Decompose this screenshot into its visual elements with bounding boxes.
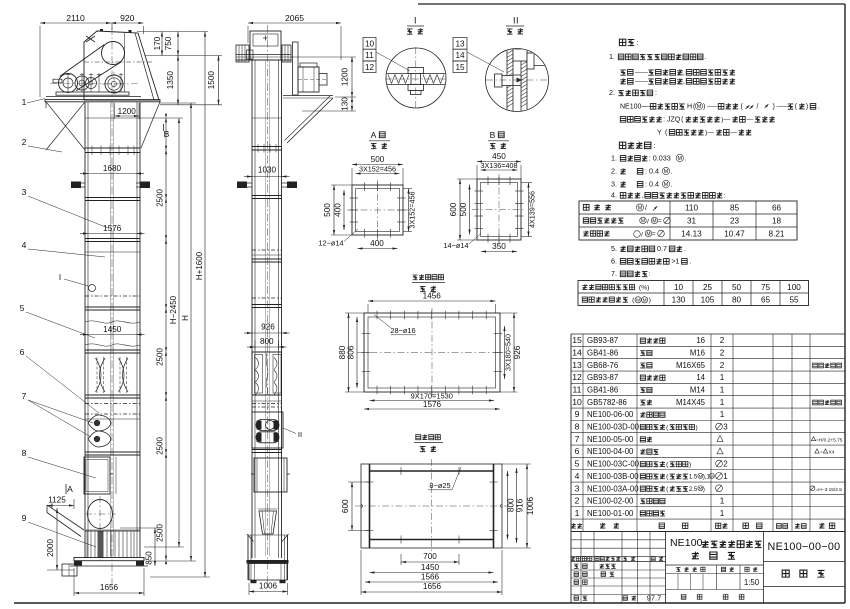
- svg-text:4.: 4.: [611, 191, 617, 200]
- svg-text:1006: 1006: [259, 582, 278, 591]
- svg-text:M: M: [652, 218, 656, 224]
- svg-text:M: M: [699, 486, 702, 491]
- svg-text:Y: Y: [657, 130, 662, 137]
- svg-text:/: /: [645, 205, 647, 212]
- svg-text:1450: 1450: [421, 563, 440, 572]
- svg-text:M: M: [646, 231, 650, 237]
- svg-text:600: 600: [449, 202, 458, 216]
- svg-text:8: 8: [575, 422, 580, 432]
- svg-text:10: 10: [572, 397, 582, 407]
- svg-text:)—: )—: [721, 117, 730, 124]
- svg-text:=H−3.15/2.5: =H−3.15/2.5: [816, 487, 843, 493]
- svg-text:(%): (%): [639, 285, 650, 292]
- svg-text:85: 85: [730, 204, 740, 213]
- svg-text:2: 2: [22, 137, 27, 147]
- svg-text:NE100-01-00: NE100-01-00: [587, 509, 634, 518]
- svg-text:12: 12: [365, 63, 375, 72]
- svg-text:2.: 2.: [611, 167, 617, 176]
- svg-text:750: 750: [164, 36, 173, 50]
- svg-text:55: 55: [789, 296, 799, 305]
- svg-text:1.: 1.: [609, 52, 615, 61]
- svg-text:3X152=456: 3X152=456: [359, 164, 396, 173]
- svg-text:15: 15: [572, 335, 582, 345]
- svg-text:NE100-03D-00: NE100-03D-00: [587, 423, 640, 432]
- svg-text:350: 350: [492, 242, 506, 251]
- svg-text:M: M: [710, 473, 713, 478]
- svg-text:B: B: [164, 129, 170, 139]
- svg-text:1656: 1656: [423, 582, 442, 591]
- svg-text:28−ø16: 28−ø16: [390, 326, 415, 335]
- svg-text:806: 806: [347, 345, 356, 359]
- svg-text:/: /: [641, 232, 643, 239]
- svg-text:1200: 1200: [118, 107, 137, 116]
- svg-text:NE100-04-00: NE100-04-00: [587, 447, 634, 456]
- svg-text::: :: [655, 90, 657, 97]
- svg-text:0.7: 0.7: [657, 244, 667, 253]
- svg-text:NE100-02-00: NE100-02-00: [587, 497, 634, 506]
- svg-text:1456: 1456: [423, 292, 442, 301]
- svg-text:13: 13: [455, 39, 465, 48]
- svg-text:1656: 1656: [100, 583, 119, 592]
- svg-text:10.47: 10.47: [724, 230, 745, 239]
- svg-text:M: M: [638, 205, 643, 211]
- svg-text:14−ø14: 14−ø14: [443, 241, 468, 250]
- svg-text:916: 916: [516, 498, 525, 512]
- svg-text:700: 700: [423, 552, 437, 561]
- svg-text:X4: X4: [829, 450, 835, 456]
- svg-text:H: H: [687, 104, 692, 111]
- svg-text:23: 23: [730, 217, 740, 226]
- svg-text:3.: 3.: [611, 180, 617, 189]
- svg-text:12: 12: [572, 372, 582, 382]
- svg-text:NE100-03A-00: NE100-03A-00: [587, 484, 639, 493]
- svg-text:1350: 1350: [166, 71, 175, 90]
- svg-text:2500: 2500: [156, 437, 165, 455]
- svg-text:10: 10: [365, 39, 375, 48]
- svg-text:M: M: [641, 218, 645, 224]
- svg-text:1.: 1.: [611, 154, 617, 163]
- svg-text:>1: >1: [671, 257, 679, 266]
- svg-text:,: ,: [642, 193, 644, 200]
- svg-text:/: /: [757, 104, 759, 111]
- svg-text:25: 25: [703, 283, 713, 292]
- svg-text:3X152=456: 3X152=456: [408, 192, 417, 229]
- svg-text:50: 50: [732, 283, 742, 292]
- svg-text:3: 3: [723, 423, 728, 432]
- svg-text:11: 11: [365, 51, 374, 60]
- svg-text:H−2450: H−2450: [169, 295, 178, 324]
- svg-text:NE100−00−00: NE100−00−00: [768, 541, 841, 553]
- svg-text:M16: M16: [690, 349, 705, 358]
- svg-text:=: =: [652, 232, 656, 238]
- svg-text:1030: 1030: [258, 166, 277, 175]
- svg-text:12−ø14: 12−ø14: [318, 239, 343, 248]
- svg-text:97.7: 97.7: [647, 594, 661, 603]
- svg-text:920: 920: [120, 13, 135, 23]
- svg-text:850: 850: [145, 551, 154, 565]
- svg-text:13: 13: [572, 360, 582, 370]
- svg-text:31: 31: [687, 217, 697, 226]
- svg-text:9: 9: [575, 409, 580, 419]
- svg-text:14: 14: [455, 51, 465, 60]
- svg-text:M: M: [636, 298, 640, 304]
- svg-text:4: 4: [575, 471, 580, 481]
- svg-text:14: 14: [696, 373, 705, 382]
- svg-text::: :: [637, 38, 639, 47]
- svg-text:2: 2: [723, 460, 728, 469]
- svg-text:130: 130: [672, 296, 686, 305]
- svg-text:400: 400: [370, 239, 384, 248]
- svg-text:5.: 5.: [611, 244, 617, 253]
- svg-text:8.21: 8.21: [769, 230, 785, 239]
- svg-text:): ): [703, 104, 705, 111]
- svg-text:GB93-87: GB93-87: [587, 336, 618, 345]
- svg-text:400: 400: [334, 203, 343, 217]
- svg-text:500: 500: [323, 203, 332, 217]
- svg-text:: 0.033: : 0.033: [649, 154, 671, 163]
- svg-text:GB68-76: GB68-76: [587, 361, 618, 370]
- svg-text:5: 5: [575, 459, 580, 469]
- svg-text:.: .: [671, 182, 673, 189]
- svg-text:1: 1: [720, 497, 725, 506]
- svg-text:): ): [689, 461, 691, 468]
- svg-text:2500: 2500: [156, 524, 165, 542]
- svg-text:2.5: 2.5: [689, 487, 698, 493]
- svg-text:880: 880: [338, 345, 347, 359]
- svg-text:7: 7: [575, 434, 580, 444]
- svg-text:): ): [806, 104, 808, 111]
- svg-text:=H/0.2+5.75: =H/0.2+5.75: [816, 437, 843, 443]
- svg-text:M: M: [664, 182, 669, 188]
- svg-text:H: H: [181, 315, 190, 321]
- svg-text:450: 450: [492, 152, 506, 161]
- svg-text:II: II: [513, 16, 519, 26]
- svg-text:1006: 1006: [526, 496, 535, 515]
- svg-text:1: 1: [723, 472, 728, 481]
- svg-text:NE100-05-00: NE100-05-00: [587, 435, 634, 444]
- svg-text:1680: 1680: [103, 164, 122, 173]
- svg-text:2: 2: [720, 361, 725, 370]
- svg-text:.: .: [704, 54, 706, 61]
- svg-text:GB41-86: GB41-86: [587, 386, 618, 395]
- svg-text:——: ——: [635, 70, 649, 77]
- svg-text:II: II: [298, 430, 302, 439]
- svg-text:600: 600: [341, 499, 350, 513]
- svg-text:M: M: [699, 473, 702, 478]
- svg-text:NE100: NE100: [670, 537, 703, 549]
- svg-text:I: I: [59, 273, 61, 282]
- svg-text:2: 2: [720, 336, 725, 345]
- svg-text:A: A: [371, 130, 377, 140]
- svg-text:1.5: 1.5: [689, 475, 698, 481]
- svg-text:.: .: [671, 169, 673, 176]
- svg-text:3: 3: [575, 483, 580, 493]
- svg-text:M: M: [664, 169, 669, 175]
- svg-text:14.13: 14.13: [681, 230, 702, 239]
- svg-text:.: .: [684, 246, 686, 253]
- svg-text:,: ,: [683, 70, 685, 77]
- svg-text:18: 18: [772, 217, 782, 226]
- svg-text:): ): [695, 424, 697, 431]
- svg-text:500: 500: [371, 155, 385, 164]
- svg-text:=: =: [658, 219, 662, 225]
- svg-text:1: 1: [720, 509, 725, 518]
- svg-text:16: 16: [696, 336, 705, 345]
- svg-text:1200: 1200: [341, 67, 350, 86]
- svg-text:130: 130: [341, 97, 350, 111]
- svg-text:15: 15: [455, 63, 465, 72]
- svg-text:.: .: [818, 104, 820, 111]
- svg-text:1500: 1500: [207, 71, 216, 90]
- svg-text:: 0.4: : 0.4: [645, 167, 659, 176]
- svg-text:1: 1: [720, 373, 725, 382]
- svg-text:M: M: [643, 298, 647, 304]
- svg-text:7: 7: [22, 391, 27, 401]
- svg-text:2000: 2000: [46, 539, 55, 557]
- svg-text:GB41-86: GB41-86: [587, 349, 618, 358]
- svg-text:1:50: 1:50: [744, 578, 760, 587]
- svg-text:1: 1: [720, 398, 725, 407]
- svg-text:,: ,: [683, 79, 685, 86]
- svg-text:2110: 2110: [66, 13, 85, 23]
- svg-text:2: 2: [720, 349, 725, 358]
- svg-text:A: A: [67, 484, 73, 494]
- svg-text:170: 170: [153, 36, 162, 50]
- svg-text:6: 6: [20, 347, 25, 357]
- svg-text:7.: 7.: [611, 269, 617, 278]
- svg-text:926: 926: [513, 345, 522, 359]
- svg-text:H+1600: H+1600: [195, 251, 204, 280]
- svg-text:)—: )—: [705, 130, 714, 137]
- svg-text:M: M: [678, 156, 683, 162]
- svg-text:M14: M14: [690, 386, 706, 395]
- svg-text:): ): [703, 487, 705, 493]
- svg-text:926: 926: [261, 323, 275, 332]
- svg-text:): ): [649, 297, 651, 304]
- svg-text:1: 1: [22, 97, 27, 107]
- svg-text:6: 6: [575, 446, 580, 456]
- svg-text:M: M: [697, 104, 702, 110]
- svg-text:2: 2: [575, 496, 580, 506]
- svg-text:I: I: [414, 16, 417, 26]
- svg-text:75: 75: [761, 283, 771, 292]
- svg-text:NE100-03B-00: NE100-03B-00: [587, 472, 639, 481]
- svg-text:=: =: [820, 451, 823, 456]
- svg-text:/: /: [647, 219, 649, 226]
- svg-text::: :: [724, 193, 726, 200]
- svg-text:1576: 1576: [103, 224, 122, 233]
- svg-text:105: 105: [701, 296, 715, 305]
- svg-text:GB93-87: GB93-87: [587, 373, 618, 382]
- svg-text:500: 500: [459, 202, 468, 216]
- svg-text:: 0.4: : 0.4: [645, 180, 659, 189]
- svg-text:1576: 1576: [423, 400, 442, 409]
- svg-text:6.: 6.: [611, 257, 617, 266]
- svg-text:M14X45: M14X45: [676, 398, 706, 407]
- svg-text:3X136=408: 3X136=408: [481, 161, 518, 170]
- svg-text:2065: 2065: [285, 13, 304, 23]
- svg-text:14: 14: [572, 348, 582, 358]
- svg-text:9: 9: [22, 513, 27, 523]
- svg-text:11: 11: [573, 385, 582, 395]
- svg-text:: JZQ: : JZQ: [663, 117, 681, 124]
- svg-text:GB5782-86: GB5782-86: [587, 398, 627, 407]
- svg-text:100: 100: [787, 283, 801, 292]
- svg-text:—: —: [746, 117, 753, 124]
- svg-text:3: 3: [22, 187, 27, 197]
- svg-text:3X180=540: 3X180=540: [504, 334, 513, 371]
- svg-text:2500: 2500: [156, 348, 165, 366]
- svg-text:800: 800: [507, 498, 516, 512]
- svg-text:80: 80: [732, 296, 742, 305]
- svg-text:1: 1: [720, 386, 725, 395]
- svg-text:NE100-03C-00: NE100-03C-00: [587, 460, 640, 469]
- svg-text:1450: 1450: [103, 325, 122, 334]
- svg-text:8: 8: [22, 448, 27, 458]
- svg-text:M16X65: M16X65: [676, 361, 706, 370]
- svg-text:2.: 2.: [609, 88, 615, 97]
- svg-text:NE100-06-00: NE100-06-00: [587, 410, 634, 419]
- svg-text:1566: 1566: [421, 573, 440, 582]
- svg-text:5: 5: [20, 303, 25, 313]
- svg-text:——: ——: [635, 79, 649, 86]
- svg-text::: :: [654, 141, 656, 150]
- svg-text:65: 65: [761, 296, 771, 305]
- svg-text:—: —: [730, 130, 737, 137]
- svg-text:B: B: [490, 130, 496, 140]
- svg-text:2500: 2500: [156, 189, 165, 207]
- svg-text:110: 110: [685, 204, 698, 213]
- svg-text:4: 4: [22, 240, 27, 250]
- svg-text:1: 1: [575, 508, 580, 518]
- svg-text:.: .: [684, 156, 686, 163]
- svg-text::: :: [649, 271, 651, 278]
- svg-text:1125: 1125: [48, 496, 66, 505]
- svg-text:800: 800: [260, 337, 274, 346]
- svg-text:8−ø25: 8−ø25: [429, 481, 450, 490]
- svg-text:): ): [773, 104, 775, 111]
- svg-text:4X139=556: 4X139=556: [528, 191, 537, 228]
- svg-text:.: .: [689, 259, 691, 266]
- svg-text:10: 10: [674, 283, 684, 292]
- svg-text:66: 66: [772, 204, 782, 213]
- svg-text:1: 1: [720, 410, 725, 419]
